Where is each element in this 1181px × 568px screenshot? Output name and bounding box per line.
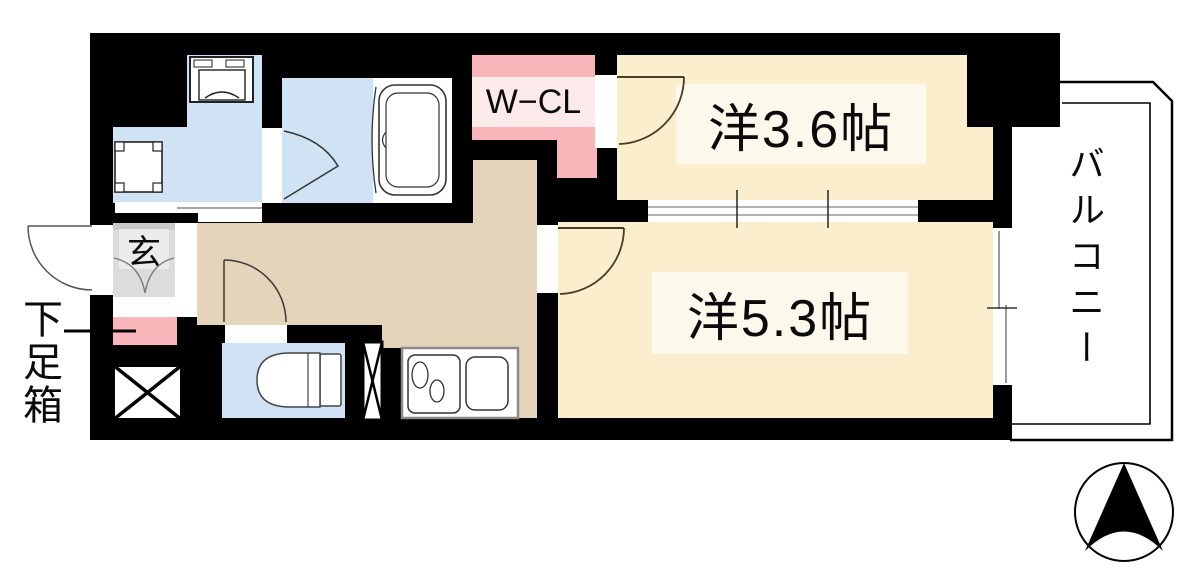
shoe-box-callout-label: 下足箱 — [16, 298, 62, 448]
closet-doorway — [595, 75, 617, 148]
shoe-box-callout-text: 下足箱 — [10, 298, 68, 427]
bathtub-zone — [373, 78, 452, 203]
bathroom-doorway — [262, 128, 282, 203]
floor-plan: W−CL 洋3.6帖 洋5.3帖 玄 下足箱 バルコニー — [0, 0, 1181, 568]
western-room-3-6-ext — [967, 127, 993, 200]
hallway-kitchen-side — [518, 348, 537, 418]
unit-wall-top-right-block — [1010, 33, 1060, 127]
entrance-door-icon — [28, 226, 92, 290]
room-partition-sliding-door — [648, 200, 918, 222]
bathroom-floor — [282, 78, 373, 203]
walk-in-closet-leg — [557, 140, 597, 178]
room-5-3-doorway — [537, 225, 558, 293]
entrance-label-text: 玄 — [127, 225, 161, 274]
western-room-3-6-label-text: 洋3.6帖 — [708, 87, 894, 162]
balcony-label: バルコニー — [1062, 145, 1106, 395]
western-room-5-3-label: 洋5.3帖 — [652, 272, 908, 354]
walk-in-closet-label: W−CL — [472, 77, 595, 127]
walk-in-closet-label-text: W−CL — [486, 83, 581, 122]
balcony-label-text: バルコニー — [1058, 145, 1110, 375]
shoe-box — [113, 317, 177, 345]
hallway-kitchen-strip — [382, 325, 537, 348]
hallway-nook — [473, 160, 537, 223]
western-room-5-3-label-text: 洋5.3帖 — [687, 276, 873, 351]
toilet-doorway — [225, 325, 287, 343]
balcony-window — [993, 228, 1012, 385]
washroom-sliding-door-panel — [198, 212, 262, 222]
hallway — [197, 223, 537, 325]
western-room-3-6-label: 洋3.6帖 — [676, 84, 926, 164]
entrance-step-horizontal — [113, 297, 197, 317]
toilet-floor — [222, 343, 345, 418]
washroom-floor — [187, 55, 262, 203]
entrance-doorway — [90, 225, 113, 295]
entrance-label: 玄 — [119, 229, 169, 269]
north-arrow-icon — [1075, 463, 1173, 561]
washroom-floor-lower — [113, 127, 187, 203]
